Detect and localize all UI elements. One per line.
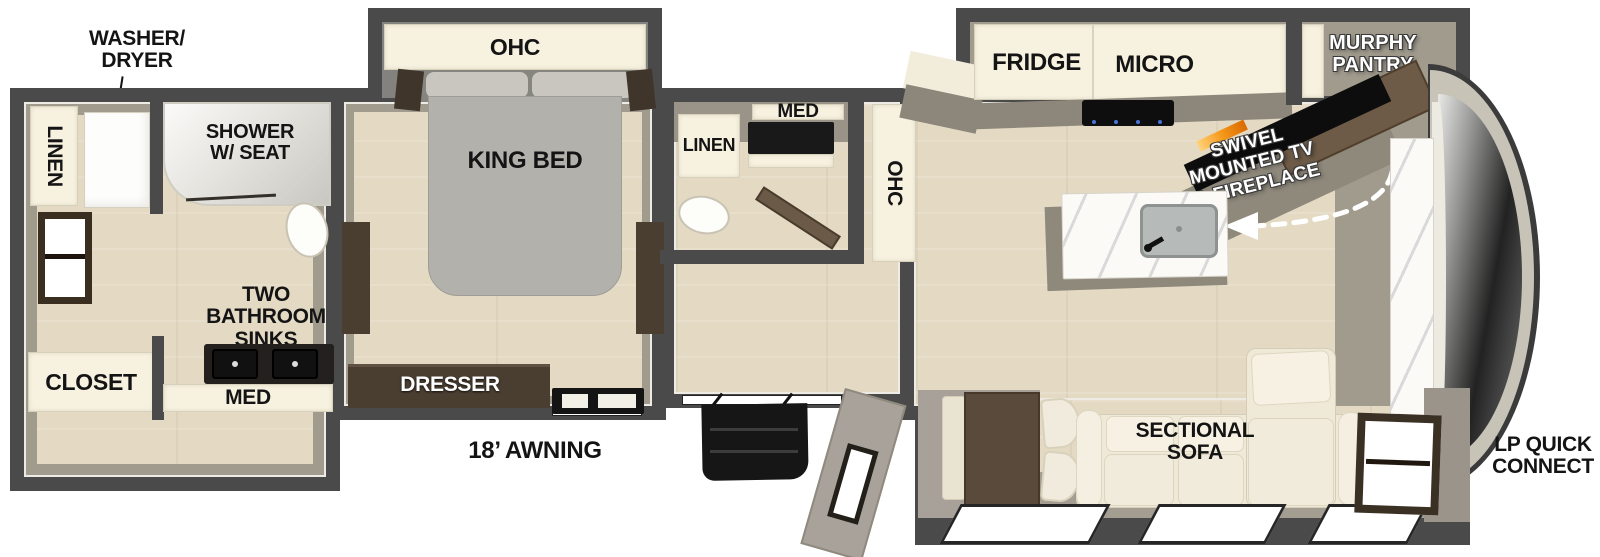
cooktop-knob-1 <box>1092 120 1096 124</box>
bed-pillow-left <box>426 72 528 98</box>
kitchen-ohc-label: OHC <box>883 160 905 206</box>
swivel-arrow <box>1208 166 1398 250</box>
mid-bath-right-wall <box>848 102 864 264</box>
washer-dryer-label: WASHER/ DRYER <box>52 28 222 73</box>
slideout-window-2 <box>1137 504 1286 544</box>
island-faucet-base <box>1144 244 1152 252</box>
closet: CLOSET <box>28 352 154 412</box>
dinette-bench <box>942 396 966 500</box>
fridge-label: FRIDGE <box>984 50 1089 75</box>
mid-bath-linen-cabinet: LINEN <box>678 114 740 178</box>
lp-quick-connect-label: LP QUICK CONNECT <box>1486 434 1600 479</box>
awning-label: 18’ AWNING <box>425 438 645 463</box>
entry-angled-wall <box>800 388 906 557</box>
entry-steps <box>701 403 808 481</box>
sofa-chaise-pillow <box>1251 350 1332 406</box>
rear-linen-label: LINEN <box>43 125 65 187</box>
dresser-label: DRESSER <box>352 374 548 396</box>
rv-floorplan: WASHER/ DRYER LINEN SHOWER W/ SEAT CLOSE… <box>0 0 1600 557</box>
bed-pillow-right <box>532 72 634 98</box>
slideout-window-1 <box>939 504 1110 544</box>
shower-label: SHOWER W/ SEAT <box>175 122 325 164</box>
sink-faucet-left <box>232 361 238 367</box>
kitchen-ohc-cabinet: OHC <box>872 104 916 262</box>
dining-table <box>964 392 1040 508</box>
mid-bath-med-label: MED <box>777 102 818 122</box>
entry-step-line-2 <box>710 450 798 453</box>
rear-linen-cabinet: LINEN <box>30 106 78 206</box>
rear-window-mullion <box>45 254 85 259</box>
cooktop-knob-4 <box>1158 120 1162 124</box>
mid-bath-linen-label: LINEN <box>683 136 736 155</box>
sofa-armrest-left <box>1076 410 1102 508</box>
mid-bath-vanity-base <box>748 154 834 168</box>
bathroom-sinks-label: TWO BATHROOM SINKS <box>196 284 336 351</box>
mid-bath-med-cabinet: MED <box>752 104 844 120</box>
nightstand-right <box>626 69 656 111</box>
cooktop-knob-3 <box>1136 120 1140 124</box>
wardrobe-right <box>636 222 664 334</box>
rear-bath-divider-wall <box>150 102 163 214</box>
wardrobe-left <box>342 222 370 334</box>
cooktop-knob-2 <box>1114 120 1118 124</box>
island-sink-drain <box>1176 226 1182 232</box>
bedroom-ohc-cabinet: OHC <box>384 24 646 70</box>
entry-wall-window <box>827 443 879 525</box>
mid-bath-bottom-wall <box>660 250 864 264</box>
fridge-micro-divider <box>1092 24 1094 100</box>
tv-bench-panel-right <box>598 394 636 408</box>
sink-faucet-right <box>292 361 298 367</box>
micro-label: MICRO <box>1102 52 1207 77</box>
rear-med-label: MED <box>225 387 271 409</box>
tv-bench-panel-left <box>562 394 588 408</box>
sectional-sofa-label: SECTIONAL SOFA <box>1120 420 1270 465</box>
murphy-pantry-label: MURPHY PANTRY <box>1298 32 1448 77</box>
nightstand-left <box>394 69 424 111</box>
rear-med-cabinet: MED <box>163 384 333 412</box>
mid-bath-vanity <box>748 122 834 154</box>
front-wall-marble-panel <box>1390 138 1434 428</box>
closet-label: CLOSET <box>45 370 136 394</box>
washer-dryer-unit <box>84 112 150 208</box>
king-bed-label: KING BED <box>440 148 610 173</box>
bedroom-ohc-label: OHC <box>490 35 540 59</box>
entry-step-line-1 <box>710 428 798 431</box>
king-bed <box>428 96 622 296</box>
